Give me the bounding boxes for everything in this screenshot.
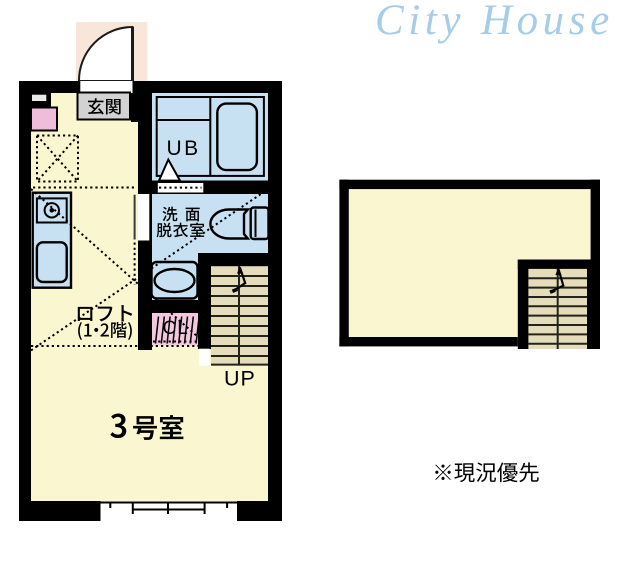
svg-text:CL: CL [163,318,189,339]
svg-text:UB: UB [167,137,201,160]
svg-text:UP: UP [224,367,256,391]
svg-text:City House: City House [375,0,614,44]
